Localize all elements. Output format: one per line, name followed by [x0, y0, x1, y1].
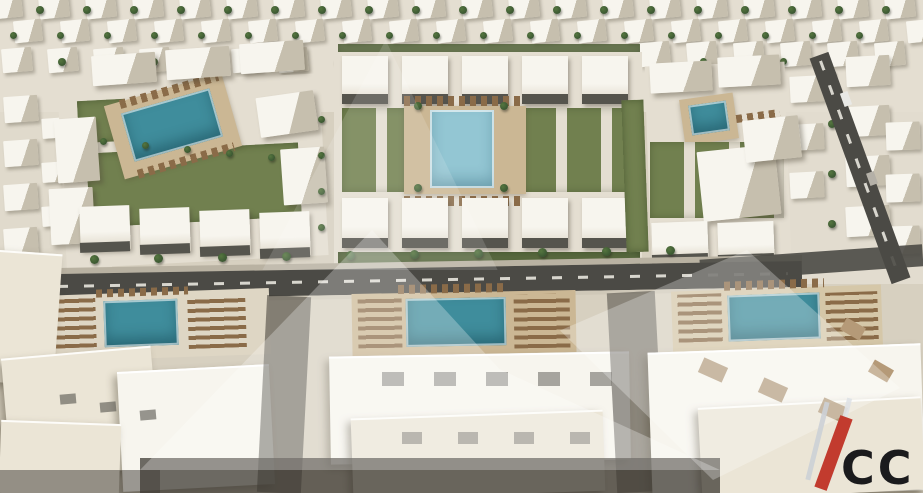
tree	[694, 6, 702, 14]
apartment-building	[649, 60, 712, 93]
tree	[647, 6, 655, 14]
villa	[624, 19, 654, 44]
tree	[318, 6, 326, 14]
villa	[248, 19, 278, 44]
sun-loungers	[514, 294, 571, 349]
villa	[13, 19, 43, 44]
tree	[574, 32, 581, 39]
tree	[600, 6, 608, 14]
tree	[177, 6, 185, 14]
tree	[130, 6, 138, 14]
villa	[1, 47, 33, 74]
tree	[506, 6, 514, 14]
villa	[60, 19, 90, 44]
apartment-building	[54, 117, 100, 184]
villa	[3, 95, 39, 123]
tree	[527, 32, 534, 39]
villa	[389, 19, 419, 44]
villa	[530, 19, 560, 44]
tree	[433, 32, 440, 39]
street-tree	[666, 246, 675, 255]
villa	[671, 19, 701, 44]
palm-tree	[500, 184, 508, 192]
tree	[365, 6, 373, 14]
villa	[483, 19, 513, 44]
apartment-building	[239, 40, 305, 74]
swimming-pool	[103, 299, 179, 348]
tree	[553, 6, 561, 14]
logo-letters: CC	[841, 445, 915, 491]
villa	[154, 19, 184, 44]
tree	[245, 32, 252, 39]
street-tree	[154, 254, 163, 263]
villa	[0, 0, 23, 20]
tree	[386, 32, 393, 39]
facade-windows	[522, 238, 568, 248]
aerial-render-image: CC	[0, 0, 923, 493]
tree	[57, 32, 64, 39]
roof-vent	[60, 393, 77, 404]
facade-windows	[80, 241, 130, 253]
roof-vent	[140, 409, 157, 420]
tree	[58, 58, 66, 66]
villa	[718, 19, 748, 44]
tree	[83, 6, 91, 14]
palm-tree	[828, 170, 836, 178]
villa	[886, 173, 921, 202]
tree	[412, 6, 420, 14]
villa	[906, 19, 923, 44]
palm-tree	[500, 102, 508, 110]
street-tree	[90, 255, 99, 264]
villa	[342, 19, 372, 44]
tree	[762, 32, 769, 39]
tree	[184, 146, 191, 153]
villa	[3, 139, 39, 167]
tree	[835, 6, 843, 14]
facade-windows	[140, 243, 190, 255]
apartment-building	[91, 52, 157, 86]
tree	[100, 138, 107, 145]
apartment-building	[165, 46, 231, 80]
tree	[271, 6, 279, 14]
street-tree	[218, 253, 227, 262]
street-shadow	[0, 470, 160, 493]
villa	[577, 19, 607, 44]
villa	[3, 183, 39, 211]
palm-tree	[828, 220, 836, 228]
apartment-building	[255, 90, 318, 138]
roof-vent	[538, 372, 560, 386]
sun-loungers	[187, 295, 247, 349]
tree	[224, 6, 232, 14]
tree	[226, 150, 233, 157]
street-tree	[538, 248, 547, 257]
apartment-building	[742, 115, 802, 163]
roof-vent	[100, 401, 117, 412]
villa	[107, 19, 137, 44]
apartment-building	[717, 54, 780, 87]
tree	[142, 142, 149, 149]
tree	[621, 32, 628, 39]
villa	[859, 19, 889, 44]
street-tree	[602, 247, 611, 256]
facade-windows	[522, 94, 568, 104]
villa	[845, 55, 891, 87]
tree	[715, 32, 722, 39]
tree	[459, 6, 467, 14]
tree	[268, 154, 275, 161]
tree	[339, 32, 346, 39]
tree	[856, 32, 863, 39]
villa	[812, 19, 842, 44]
tree	[668, 32, 675, 39]
villa	[886, 121, 921, 150]
villa	[789, 171, 824, 199]
tree	[151, 32, 158, 39]
villa	[436, 19, 466, 44]
tree	[882, 6, 890, 14]
villa	[201, 19, 231, 44]
tree	[10, 32, 17, 39]
swimming-pool	[688, 101, 730, 136]
tree	[809, 32, 816, 39]
tree	[104, 32, 111, 39]
villa	[765, 19, 795, 44]
tree	[292, 32, 299, 39]
developer-logo: CC	[801, 393, 921, 493]
tree	[480, 32, 487, 39]
tree	[198, 32, 205, 39]
tree	[36, 6, 44, 14]
tree	[318, 116, 325, 123]
tree	[741, 6, 749, 14]
tree	[788, 6, 796, 14]
